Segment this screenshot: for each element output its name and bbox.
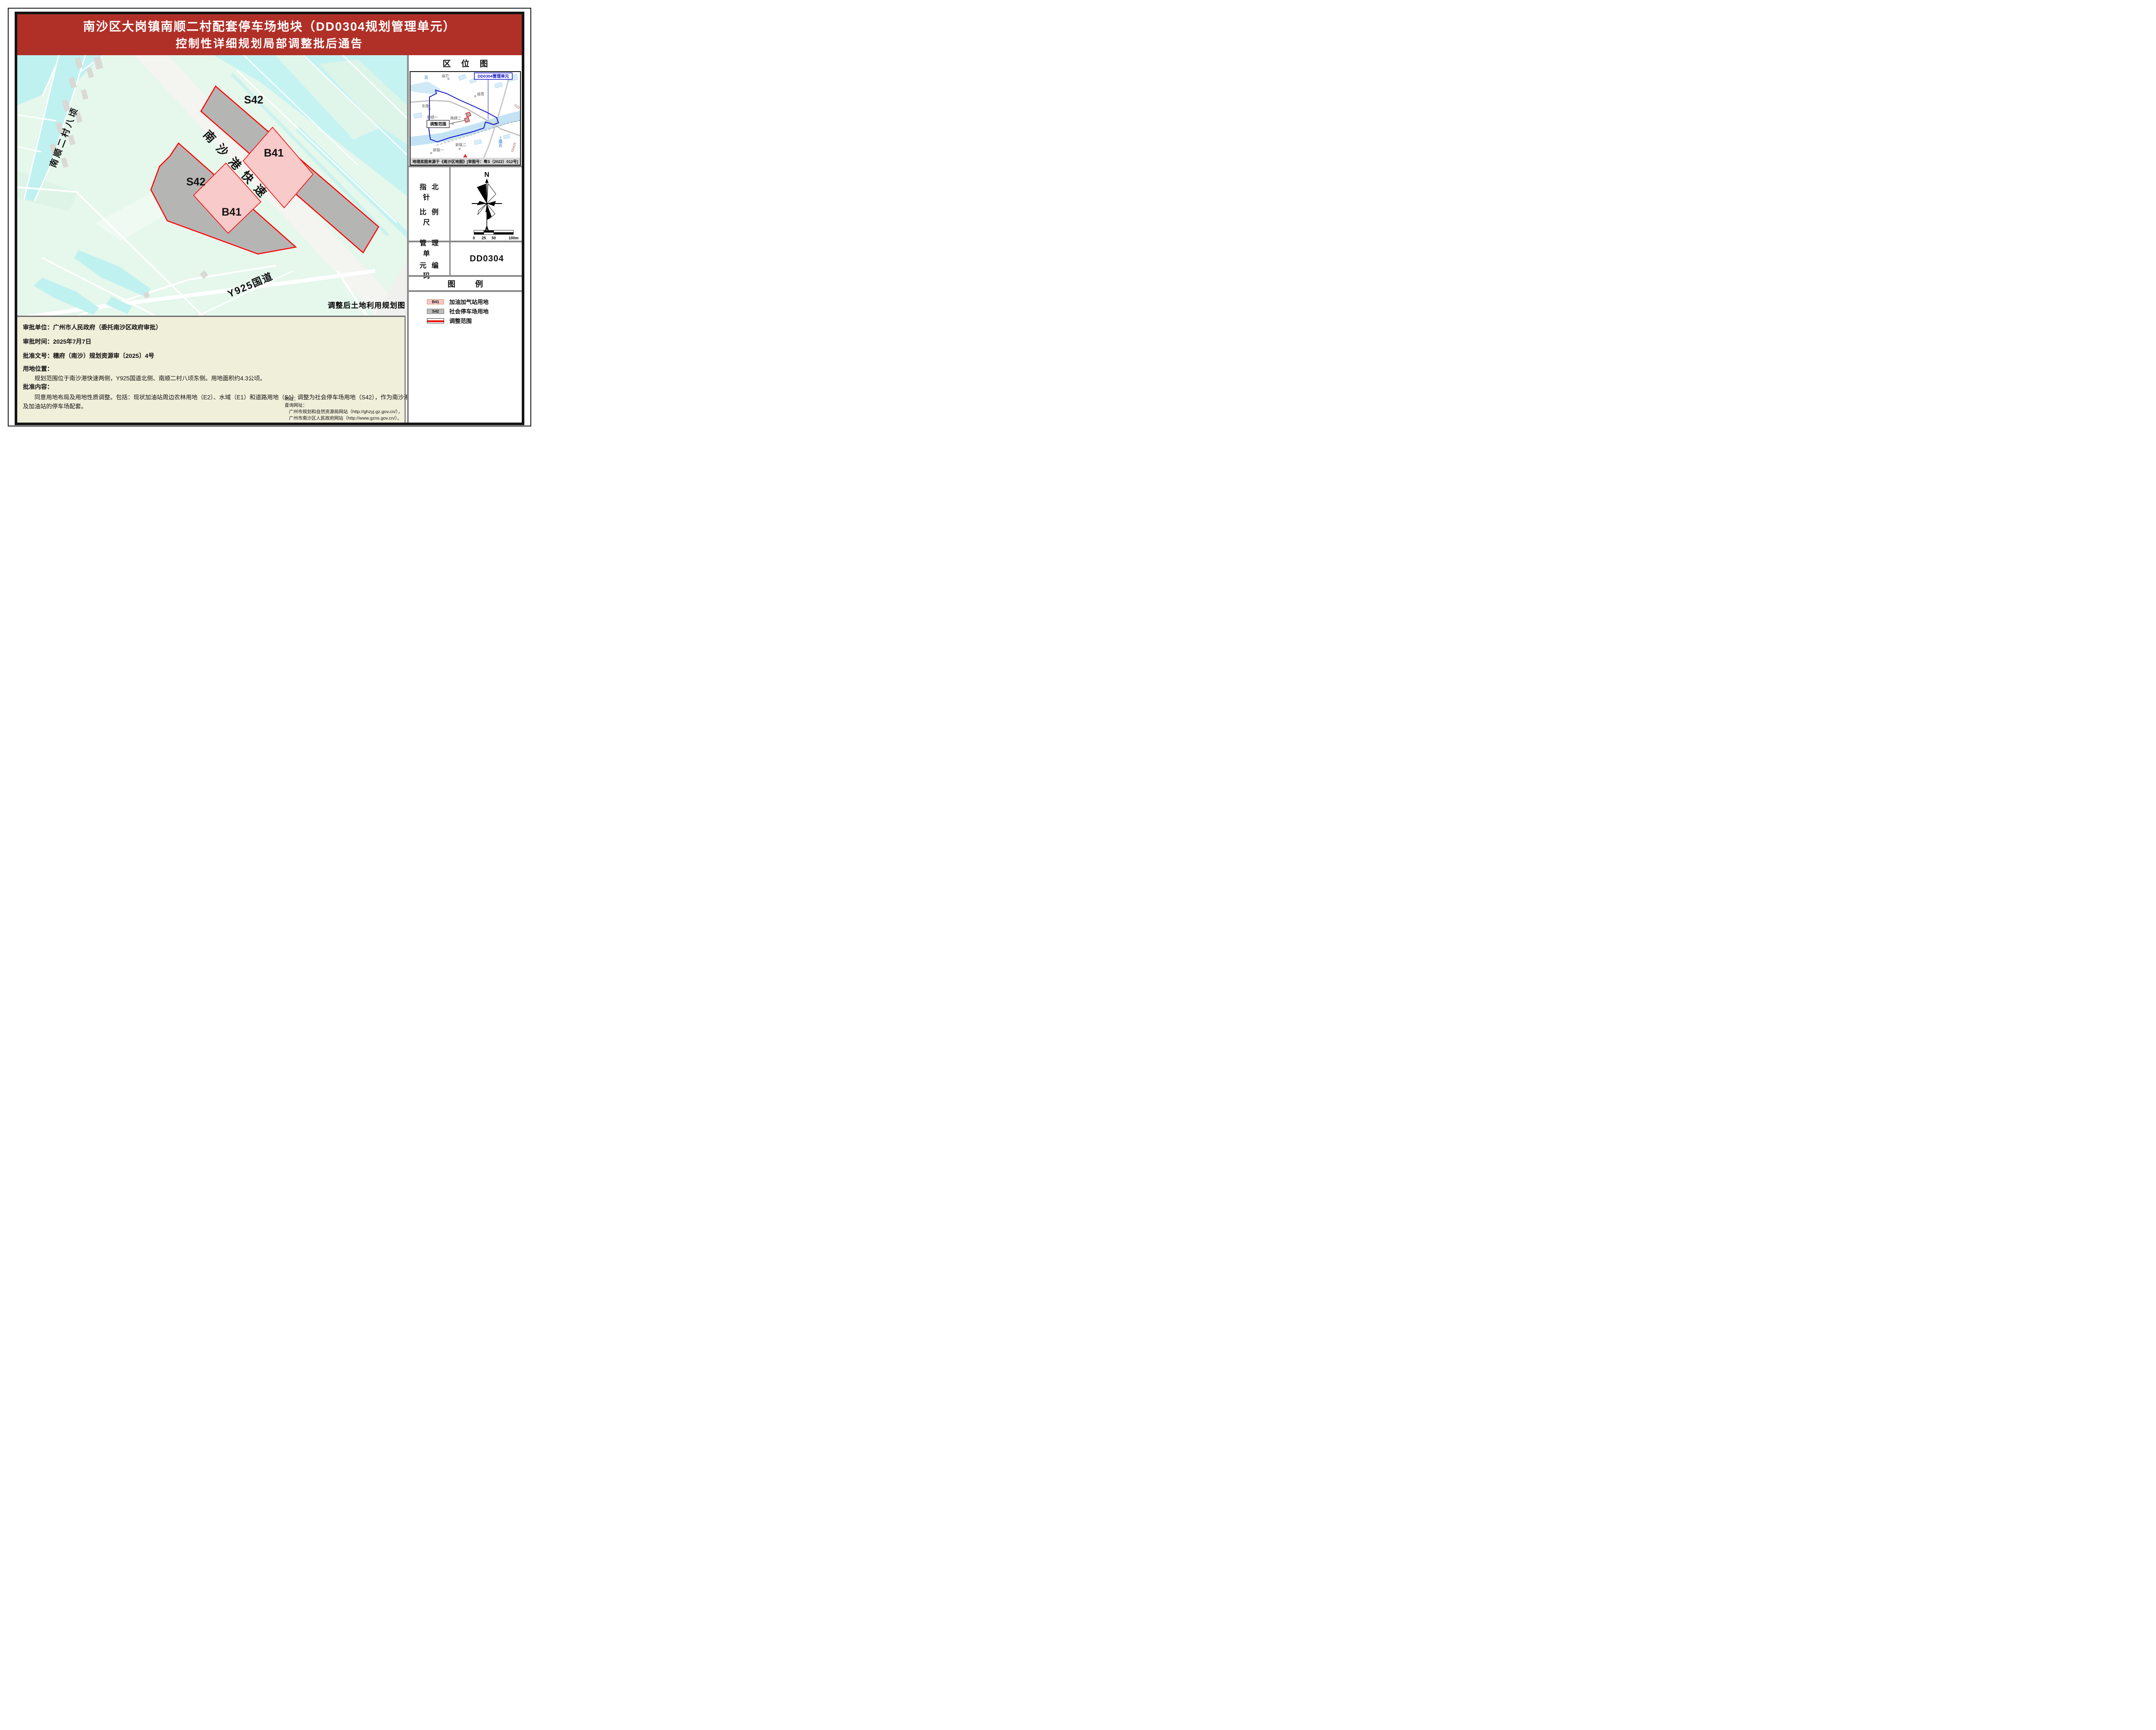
title-banner: 南沙区大岗镇南顺二村配套停车场地块（DD0304规划管理单元） 控制性详细规划局… [17, 14, 522, 55]
content-title: 批准内容： [23, 382, 53, 391]
notes-query: 查询网址： [285, 402, 405, 409]
scale-tick-25: 25 [482, 236, 486, 240]
right-panel: 区位图 [407, 55, 522, 423]
landuse-map: S42 B41 S42 B41 南沙港快速 南顺二村八顷 Y925国道 调整后土… [17, 55, 409, 316]
legend-swatch-s42: S42 [427, 309, 444, 314]
legend-title: 图例 [409, 277, 522, 290]
locmap-source-caption: 地理底图来源于《南沙区地图》[审图号：粤S（2022）012号] [411, 158, 520, 165]
locmap-place-donglong: 东隆 [422, 104, 429, 108]
legend-label-s42: 社会停车场用地 [449, 307, 489, 315]
notes-block: 附注： 查询网址： 广州市规划和自然资源局网站（http://ghzyj.gz.… [285, 396, 405, 422]
locmap-range-parcel [464, 117, 470, 122]
legend-item-s42: S42 社会停车场用地 [427, 308, 489, 314]
location-body: 规划范围位于南沙港快速两侧，Y925国道北侧、南顺二村八顷东侧。用地面积约4.3… [23, 373, 401, 382]
legend-item-range: 调整范围 [427, 318, 472, 323]
legend-item-b41: B41 加油加气站用地 [427, 299, 489, 304]
locmap-place-xinlian2: 新联二 [455, 143, 467, 147]
unit-code-section: 管理单 元编码 DD0304 [409, 242, 522, 275]
locmap-place-miaobei: 庙贝 [442, 74, 449, 78]
compass-label-cell: 指北针 比例尺 [409, 167, 451, 241]
parcel-label-s42-upper: S42 [244, 94, 263, 106]
parcel-label-s42-lower: S42 [186, 176, 205, 188]
date-line: 审批时间：2025年7月7日 [23, 337, 91, 346]
locmap-place-miaoqing: 庙青 [477, 92, 484, 96]
north-letter: N [484, 171, 489, 179]
locmap-unit-label: DD0304管理单元 [478, 74, 509, 79]
approval-info-panel: 审批单位：广州市人民政府（委托南沙区政府审批） 审批时间：2025年7月7日 批… [17, 316, 406, 423]
unit-code-label-cell: 管理单 元编码 [409, 242, 451, 275]
parcel-label-b41-upper: B41 [264, 147, 284, 159]
legend-label-range: 调整范围 [449, 317, 472, 325]
legend-swatch-range [427, 318, 444, 323]
locmap-place-shanghengli: 上横沥 [498, 136, 502, 148]
map-caption: 调整后土地利用规划图 [328, 301, 405, 310]
locmap-range-label: 调整范围 [430, 122, 446, 127]
legend-label-b41: 加油加气站用地 [449, 298, 489, 306]
locmap-place-nanshun1: 南顺一 [427, 115, 438, 119]
location-map-box: DD0304管理单元 调整范围 沥 庙贝 庙青 东隆 南顺一 南顺二 新联二 新… [410, 71, 521, 166]
landuse-map-canvas: S42 B41 S42 B41 南沙港快速 南顺二村八顷 Y925国道 调整后土… [17, 55, 409, 316]
notes-title: 附注： [285, 396, 405, 402]
notes-site1: 广州市规划和自然资源局网站（http://ghzyj.gz.gov.cn/）， [285, 409, 405, 415]
approver-line: 审批单位：广州市人民政府（委托南沙区政府审批） [23, 323, 162, 332]
divider [409, 290, 522, 292]
locmap-place-nanshun2: 南顺二 [450, 116, 461, 120]
page-title-line1: 南沙区大岗镇南顺二村配套停车场地块（DD0304规划管理单元） [83, 18, 456, 35]
location-map-canvas: DD0304管理单元 调整范围 沥 庙贝 庙青 东隆 南顺一 南顺二 新联二 新… [411, 72, 520, 158]
scale-tick-50: 50 [492, 236, 496, 240]
unit-code-label-line1: 管理单 [409, 237, 449, 258]
parcel-label-b41-lower: B41 [222, 206, 241, 218]
location-map-title: 区位图 [409, 55, 522, 71]
compass-section: 指北针 比例尺 N [409, 167, 522, 241]
scale-bar [474, 230, 514, 235]
docno-line: 批准文号：穗府（南沙）规划资源审〔2025〕4号 [23, 351, 154, 360]
locmap-place-xinlian1: 新联一 [433, 148, 444, 152]
locmap-place-li: 沥 [424, 75, 428, 80]
range-line [427, 320, 444, 322]
location-title: 用地位置： [23, 364, 53, 373]
unit-code-value: DD0304 [452, 242, 522, 275]
notice-page: 南沙区大岗镇南顺二村配套停车场地块（DD0304规划管理单元） 控制性详细规划局… [17, 14, 522, 423]
compass-rose [472, 179, 502, 231]
scale-tick-0: 0 [473, 236, 475, 240]
notes-site2: 广州市南沙区人民政府网站（http://www.gzns.gov.cn/）。 [285, 415, 405, 422]
compass-label-line2: 比例尺 [409, 206, 449, 227]
compass-canvas: N [452, 167, 522, 241]
compass-label-line1: 指北针 [409, 181, 449, 202]
scale-tick-100m: 100m [508, 236, 518, 240]
page-title-line2: 控制性详细规划局部调整批后通告 [175, 35, 363, 52]
legend-swatch-b41: B41 [427, 299, 444, 304]
